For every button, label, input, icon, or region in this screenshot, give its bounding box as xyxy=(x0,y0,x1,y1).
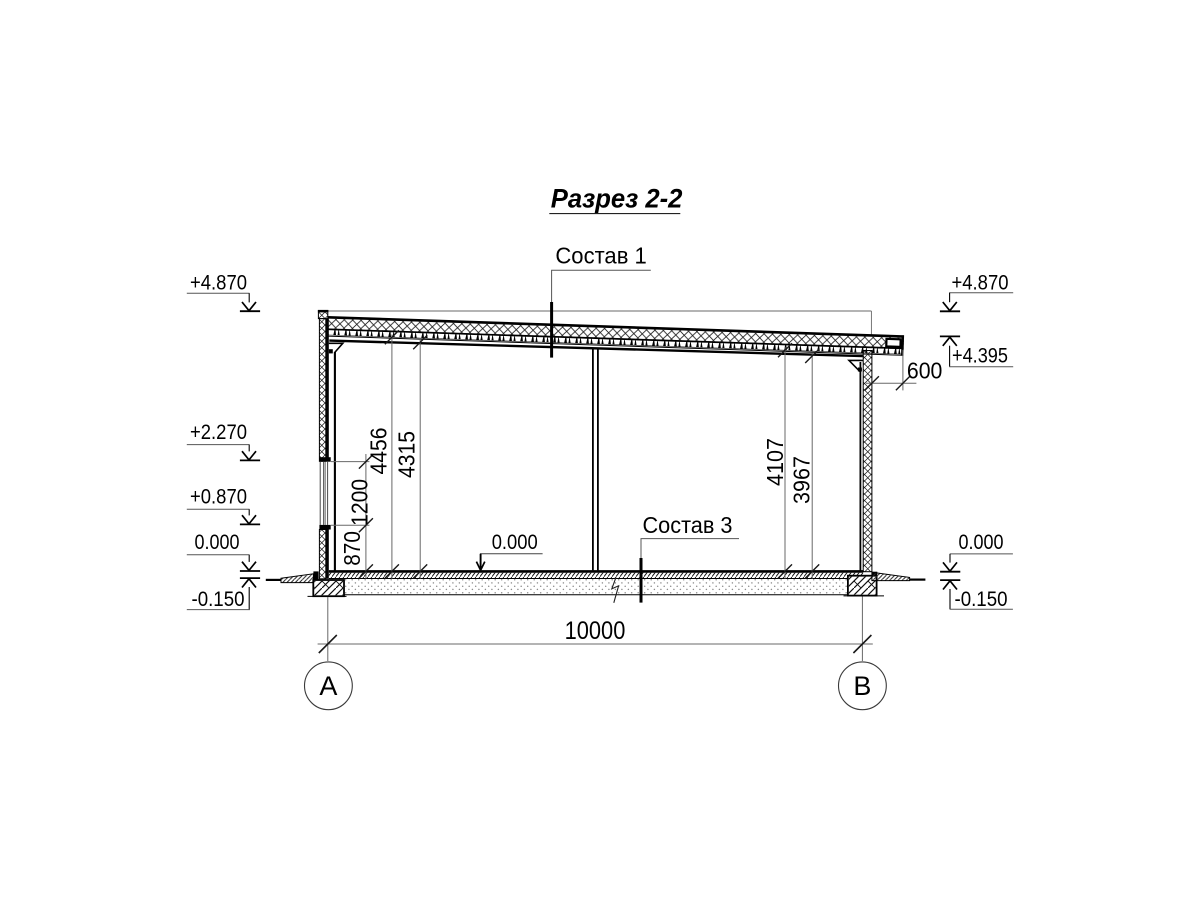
svg-text:4107: 4107 xyxy=(762,438,788,486)
svg-text:+0.870: +0.870 xyxy=(190,486,247,509)
svg-text:+4.870: +4.870 xyxy=(952,271,1009,294)
svg-text:3967: 3967 xyxy=(788,456,814,504)
svg-text:-0.150: -0.150 xyxy=(192,588,245,611)
svg-text:Состав 3: Состав 3 xyxy=(643,512,733,538)
svg-text:4315: 4315 xyxy=(394,431,420,478)
svg-text:В: В xyxy=(853,671,871,701)
svg-text:0.000: 0.000 xyxy=(492,531,538,554)
svg-text:600: 600 xyxy=(907,357,943,383)
svg-text:0.000: 0.000 xyxy=(195,531,240,554)
svg-text:А: А xyxy=(319,671,337,701)
svg-text:-0.150: -0.150 xyxy=(955,588,1008,611)
svg-text:+2.270: +2.270 xyxy=(190,421,247,444)
svg-text:870: 870 xyxy=(339,531,365,566)
svg-text:0.000: 0.000 xyxy=(959,531,1004,554)
svg-text:+4.395: +4.395 xyxy=(952,345,1008,368)
svg-text:Разрез 2-2: Разрез 2-2 xyxy=(551,184,683,214)
svg-text:4456: 4456 xyxy=(366,428,392,475)
svg-text:Состав 1: Состав 1 xyxy=(555,243,646,269)
svg-text:1200: 1200 xyxy=(347,479,373,526)
svg-text:10000: 10000 xyxy=(565,617,626,645)
svg-text:+4.870: +4.870 xyxy=(190,272,247,295)
